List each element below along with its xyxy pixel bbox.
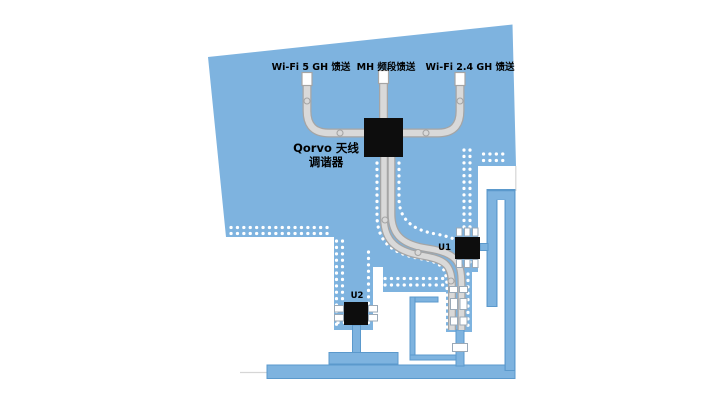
label-u1: U1 bbox=[438, 243, 451, 253]
hairpin-antenna-element bbox=[492, 195, 510, 372]
t-antenna-element bbox=[329, 325, 398, 364]
pcb-antenna-diagram: Wi-Fi 5 GH 馈送 MH 频段馈送 Wi-Fi 2.4 GH 馈送 Qo… bbox=[0, 0, 720, 405]
label-tuner-line2: 调谐器 bbox=[309, 155, 344, 169]
corridor-feed-stub bbox=[453, 330, 468, 366]
u1-chip bbox=[455, 237, 480, 259]
bottom-ground-bar bbox=[267, 365, 515, 379]
label-wifi24-feed: Wi-Fi 2.4 GH 馈送 bbox=[426, 61, 515, 73]
label-u2: U2 bbox=[351, 291, 364, 301]
qorvo-tuner-chip bbox=[364, 118, 403, 157]
label-tuner-line1: Qorvo 天线 bbox=[293, 141, 359, 155]
wifi24-feed-port bbox=[455, 73, 465, 86]
u2-chip bbox=[344, 302, 368, 325]
label-wifi5-feed: Wi-Fi 5 GH 馈送 bbox=[272, 61, 351, 73]
wifi5-feed-port bbox=[302, 73, 312, 86]
u1-output-stub bbox=[480, 244, 488, 251]
label-mh-feed: MH 频段馈送 bbox=[357, 61, 416, 73]
diagram-canvas: Wi-Fi 5 GH 馈送 MH 频段馈送 Wi-Fi 2.4 GH 馈送 Qo… bbox=[0, 0, 720, 405]
